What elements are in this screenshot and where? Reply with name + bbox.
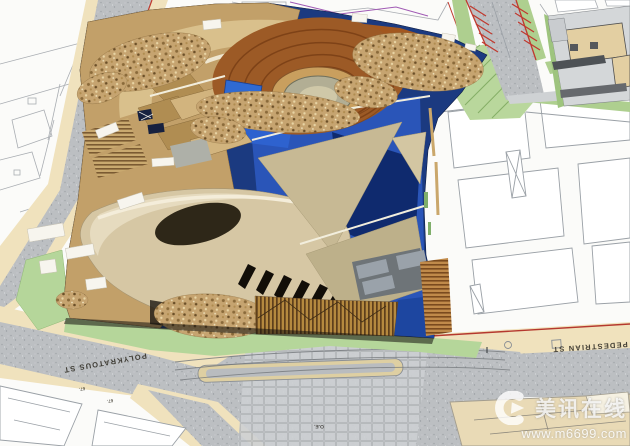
building-complex [544, 6, 630, 108]
screenshot-root: POLYKRATOUS ST PEDESTRIAN ST 67. 67. O.E… [0, 0, 630, 446]
site-plan-graphic [0, 0, 630, 446]
lot-label-b: 67. [106, 398, 113, 404]
plan-note-label: O.E. [314, 423, 324, 429]
lot-label-a: 67. [78, 386, 85, 392]
architectural-model [27, 3, 487, 344]
